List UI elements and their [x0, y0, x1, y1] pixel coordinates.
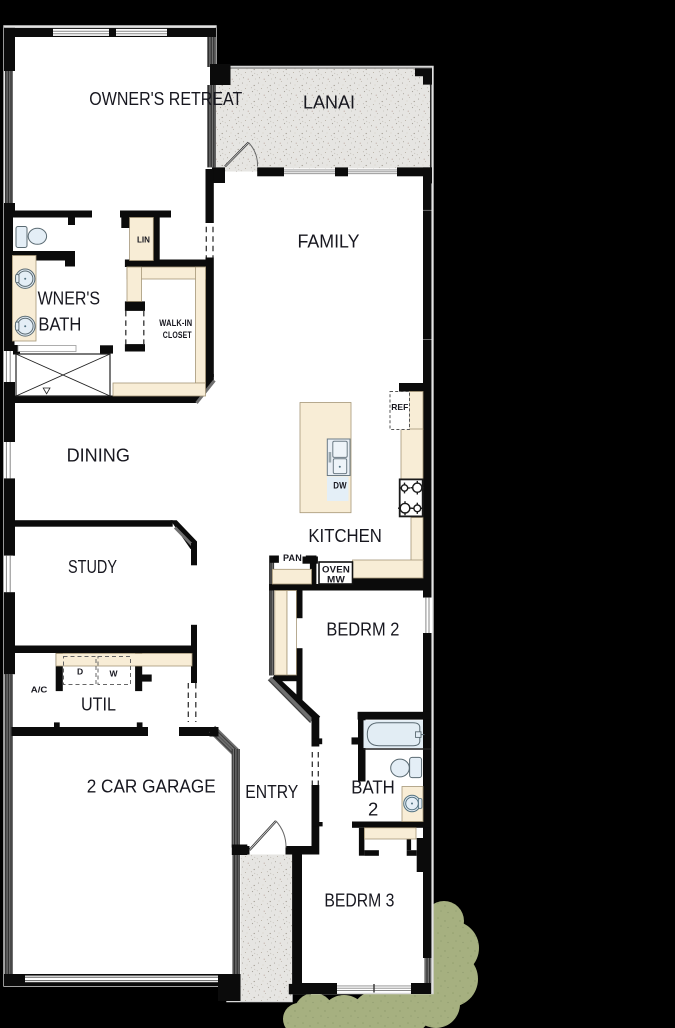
svg-text:LANAI: LANAI	[303, 92, 355, 113]
svg-text:PAN: PAN	[283, 553, 302, 564]
svg-text:BATH: BATH	[38, 314, 81, 335]
svg-text:MW: MW	[327, 575, 345, 586]
svg-text:REF: REF	[391, 402, 408, 412]
svg-text:FAMILY: FAMILY	[298, 231, 360, 252]
svg-text:STUDY: STUDY	[68, 556, 117, 577]
svg-text:DINING: DINING	[67, 445, 130, 466]
svg-text:D: D	[77, 667, 83, 677]
svg-text:WALK-IN: WALK-IN	[159, 318, 192, 329]
svg-text:2: 2	[368, 799, 378, 820]
svg-text:BEDRM 3: BEDRM 3	[324, 890, 394, 911]
svg-text:2 CAR GARAGE: 2 CAR GARAGE	[87, 776, 216, 797]
svg-text:OWNER'S RETREAT: OWNER'S RETREAT	[89, 88, 242, 109]
svg-text:W: W	[110, 669, 119, 679]
svg-text:KITCHEN: KITCHEN	[308, 525, 382, 546]
svg-text:A/C: A/C	[31, 685, 48, 695]
svg-text:UTIL: UTIL	[81, 694, 116, 715]
svg-text:DW: DW	[333, 481, 347, 492]
svg-text:CLOSET: CLOSET	[163, 330, 192, 341]
svg-text:BEDRM 2: BEDRM 2	[326, 619, 399, 640]
svg-text:WNER'S: WNER'S	[38, 288, 101, 309]
svg-text:LIN: LIN	[137, 235, 150, 245]
svg-text:BATH: BATH	[351, 777, 395, 798]
svg-text:ENTRY: ENTRY	[245, 781, 298, 802]
